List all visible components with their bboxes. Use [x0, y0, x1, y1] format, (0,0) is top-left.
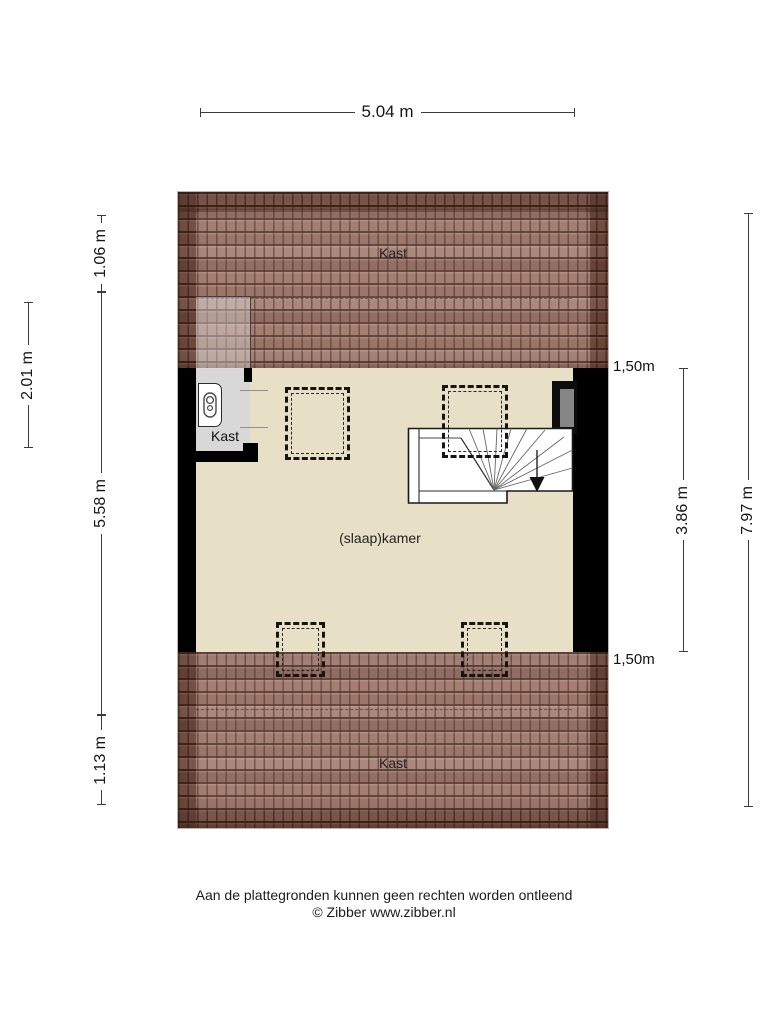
dimension-label: 7.97 m — [739, 480, 757, 541]
dimension-left-bottom: 1.13 m — [89, 715, 113, 805]
dimension-label: 1.13 m — [92, 730, 110, 791]
roof-contour-line-top — [196, 298, 572, 299]
floorplan-page: 5.04 m 2.01 m 1.06 m 5.58 m 1.13 m 3.8 — [0, 0, 768, 1024]
room-label-kast-top: Kast — [178, 245, 608, 261]
skylight-dashed-bottom-right — [461, 622, 508, 677]
room-label-closet: Kast — [196, 428, 254, 444]
dimension-line — [421, 112, 575, 113]
closet-wall-stub — [243, 443, 258, 455]
roof-contour-line-bottom — [196, 709, 572, 710]
dimension-line — [201, 112, 355, 113]
dimension-line — [101, 284, 102, 291]
skylight-inner-line — [448, 391, 502, 452]
dimension-line — [101, 716, 102, 730]
dimension-right-outer: 7.97 m — [736, 213, 760, 807]
knee-wall-label-bottom: 1,50m — [613, 651, 655, 668]
wall-left — [178, 368, 196, 652]
dimension-line — [683, 369, 684, 480]
dimension-label: 5.04 m — [355, 102, 421, 122]
dimension-line — [748, 540, 749, 806]
room-label-kast-bottom: Kast — [178, 755, 608, 771]
floorplan: Kast Kast Kast ( — [178, 192, 608, 828]
skylight-inner-line — [467, 628, 502, 671]
dimension-tick — [24, 447, 33, 448]
roof-edge-shading — [178, 652, 608, 828]
dimension-label: 2.01 m — [19, 345, 37, 406]
dimension-line — [748, 214, 749, 480]
skylight-dashed-bottom-left — [276, 622, 325, 677]
dimension-tick — [574, 108, 575, 117]
room-label-bedroom: (slaap)kamer — [280, 530, 480, 546]
dimension-line — [101, 534, 102, 714]
dimension-tick — [679, 651, 688, 652]
window-glass — [560, 389, 574, 427]
dimension-line — [101, 216, 102, 223]
dimension-label: 1.06 m — [92, 223, 110, 284]
sink-cabinet — [198, 383, 222, 427]
roof-inner-shading — [196, 210, 590, 368]
roof-area-bottom: Kast — [178, 652, 608, 828]
footer-disclaimer: Aan de plattegronden kunnen geen rechten… — [0, 887, 768, 904]
dimension-line — [683, 540, 684, 651]
dimension-tick — [97, 804, 106, 805]
dimension-top: 5.04 m — [200, 100, 575, 124]
skylight-inner-line — [282, 628, 319, 671]
dimension-tick — [744, 806, 753, 807]
dimension-label: 3.86 m — [674, 480, 692, 541]
wall-right — [573, 368, 608, 652]
skylight-dashed-top-right — [442, 385, 508, 458]
door-opening-mark — [240, 390, 268, 391]
footer: Aan de plattegronden kunnen geen rechten… — [0, 887, 768, 921]
footer-copyright: © Zibber www.zibber.nl — [0, 904, 768, 921]
dimension-left-outer: 2.01 m — [16, 302, 40, 448]
roof-inner-shading — [196, 652, 590, 810]
skylight-dashed-top-left — [285, 387, 350, 460]
skylight-inner-line — [291, 393, 344, 454]
dimension-line — [101, 293, 102, 473]
closet-wall-stub — [244, 368, 252, 382]
dimension-line — [28, 405, 29, 447]
dimension-line — [101, 790, 102, 804]
closet-roof-extension — [196, 296, 251, 369]
dimension-left-middle: 5.58 m — [89, 292, 113, 715]
dimension-label: 5.58 m — [92, 473, 110, 534]
bedroom-floor — [196, 368, 573, 652]
dimension-line — [28, 303, 29, 345]
knee-wall-label-top: 1,50m — [613, 358, 655, 375]
dimension-left-top: 1.06 m — [89, 215, 113, 292]
dimension-right-inner: 3.86 m — [671, 368, 695, 652]
sink-icon — [203, 392, 217, 418]
